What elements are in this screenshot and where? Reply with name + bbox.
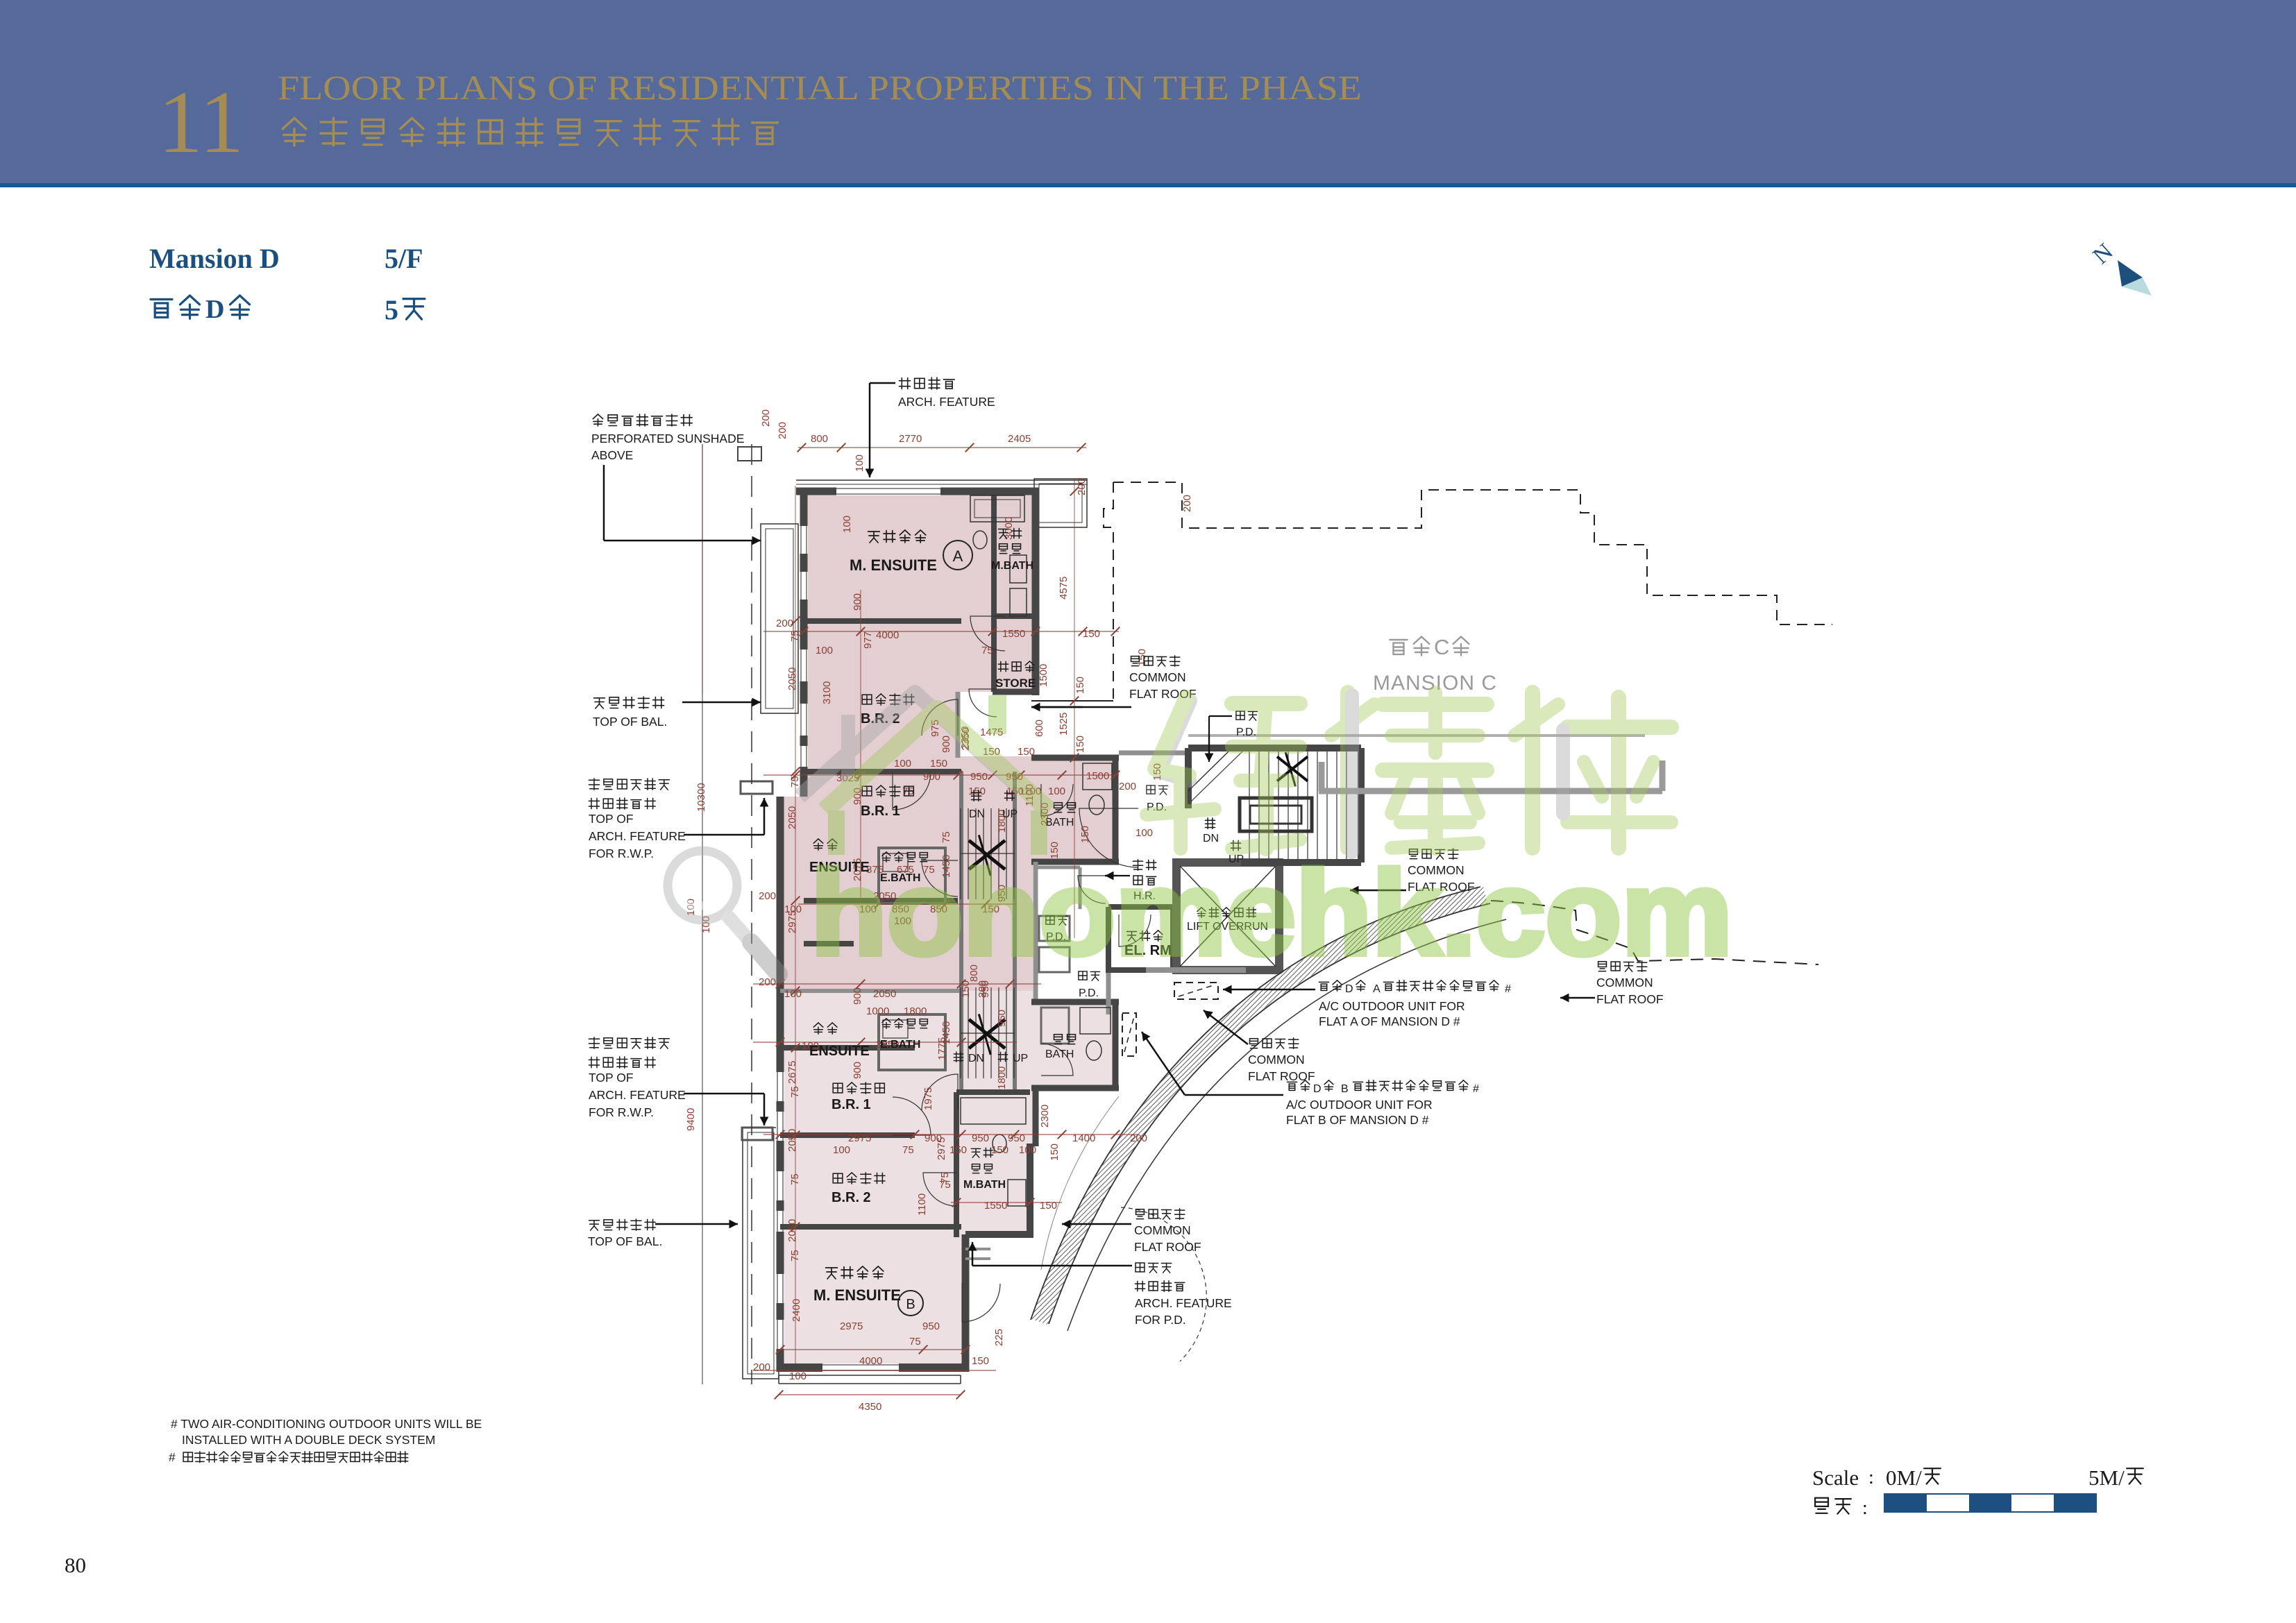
svg-text:P.D.: P.D.: [1079, 987, 1099, 999]
svg-text:1400: 1400: [1072, 1132, 1095, 1144]
svg-text:2770: 2770: [899, 433, 922, 445]
svg-text:200: 200: [1181, 495, 1193, 512]
svg-text:75: 75: [939, 1172, 951, 1184]
svg-text:FLAT B OF MANSION D #: FLAT B OF MANSION D #: [1286, 1113, 1429, 1127]
svg-text:900: 900: [852, 593, 863, 611]
svg-text:100: 100: [1048, 785, 1065, 797]
svg-text:1800: 1800: [904, 1005, 927, 1017]
svg-text:1500: 1500: [1038, 664, 1049, 687]
svg-text:2400: 2400: [791, 1299, 802, 1322]
svg-text:ARCH. FEATURE: ARCH. FEATURE: [589, 1088, 686, 1102]
svg-text:D: D: [205, 295, 224, 324]
svg-text:1775: 1775: [936, 1037, 948, 1060]
svg-text:75: 75: [940, 831, 952, 843]
svg-text:A: A: [953, 547, 963, 565]
svg-text:#: #: [1505, 983, 1511, 995]
svg-text:2975: 2975: [786, 910, 798, 933]
svg-text:FLAT A OF MANSION D #: FLAT A OF MANSION D #: [1319, 1014, 1460, 1028]
svg-text:100: 100: [816, 645, 833, 656]
svg-text:150: 150: [991, 1144, 1008, 1156]
svg-text:2975: 2975: [936, 1137, 947, 1160]
svg-text:M.BATH: M.BATH: [991, 560, 1033, 572]
svg-text:2405: 2405: [1008, 433, 1031, 445]
svg-text:TOP OF: TOP OF: [589, 812, 634, 826]
svg-text:0M/: 0M/: [1886, 1465, 1922, 1490]
svg-text::: :: [1862, 1497, 1868, 1519]
svg-text:2050: 2050: [786, 668, 798, 690]
svg-text:150: 150: [968, 785, 986, 797]
svg-text:COMMON: COMMON: [1134, 1223, 1191, 1237]
svg-text:950: 950: [972, 1132, 989, 1144]
svg-text:FOR R.W.P.: FOR R.W.P.: [589, 1105, 654, 1119]
svg-text:FLOOR PLANS OF RESIDENTIAL PRO: FLOOR PLANS OF RESIDENTIAL PROPERTIES IN…: [278, 68, 1362, 107]
svg-text:5: 5: [385, 294, 398, 325]
svg-text:150: 150: [1083, 628, 1100, 640]
svg-text:75: 75: [789, 1250, 801, 1261]
svg-text:100: 100: [854, 454, 866, 472]
svg-text:2975: 2975: [840, 1320, 863, 1332]
svg-text:BATH: BATH: [1045, 1048, 1074, 1060]
svg-text:100: 100: [841, 516, 853, 533]
svg-text:M.BATH: M.BATH: [963, 1179, 1006, 1191]
svg-text:600: 600: [1033, 720, 1045, 737]
svg-text:75: 75: [902, 1144, 914, 1156]
svg-text:225: 225: [993, 1329, 1005, 1346]
svg-text:B: B: [1341, 1083, 1349, 1095]
svg-text:hohomehk.com: hohomehk.com: [811, 847, 1732, 980]
svg-text:ARCH. FEATURE: ARCH. FEATURE: [1135, 1296, 1232, 1310]
svg-text:75: 75: [981, 645, 993, 656]
svg-text:2050: 2050: [873, 988, 896, 1000]
svg-text:150: 150: [1018, 746, 1035, 758]
svg-text:200: 200: [777, 422, 788, 439]
svg-text:4575: 4575: [1058, 577, 1070, 600]
svg-text:STORE: STORE: [995, 677, 1036, 690]
svg-text:9400: 9400: [685, 1108, 697, 1131]
svg-text:150: 150: [930, 758, 947, 770]
svg-text:75: 75: [789, 1173, 801, 1185]
svg-text:950: 950: [979, 980, 991, 998]
svg-text:5/F: 5/F: [385, 243, 423, 274]
svg-text:150: 150: [1074, 736, 1086, 753]
svg-text:200: 200: [1119, 781, 1136, 792]
svg-text:1525: 1525: [1058, 713, 1070, 736]
svg-text:COMMON: COMMON: [1248, 1053, 1305, 1067]
svg-text:BATH: BATH: [1045, 817, 1074, 829]
svg-text:B.R. 1: B.R. 1: [832, 1097, 871, 1112]
svg-text:100: 100: [1136, 827, 1153, 839]
svg-text:100: 100: [1019, 1144, 1036, 1156]
svg-text:A: A: [1373, 983, 1381, 995]
svg-text:5M/: 5M/: [2088, 1465, 2125, 1490]
svg-text:FLAT ROOF: FLAT ROOF: [1134, 1240, 1201, 1254]
svg-text:C: C: [1434, 635, 1449, 659]
svg-text:TOP OF BAL.: TOP OF BAL.: [593, 715, 667, 729]
svg-text:1550: 1550: [984, 1200, 1007, 1212]
svg-text:TOP OF BAL.: TOP OF BAL.: [588, 1234, 662, 1248]
svg-text:800: 800: [811, 433, 828, 445]
svg-text:950: 950: [922, 1320, 940, 1332]
svg-text:UP: UP: [1002, 808, 1018, 820]
svg-text:Mansion D: Mansion D: [149, 243, 280, 274]
svg-text:75: 75: [789, 630, 801, 642]
svg-text:150: 150: [960, 980, 972, 998]
svg-text:FOR P.D.: FOR P.D.: [1135, 1313, 1186, 1327]
svg-text:ABOVE: ABOVE: [591, 448, 633, 462]
svg-text:150: 150: [972, 1355, 989, 1367]
svg-text:900: 900: [852, 1062, 863, 1079]
svg-text:TOP OF: TOP OF: [589, 1071, 634, 1085]
svg-text:4350: 4350: [859, 1401, 881, 1413]
svg-text:2300: 2300: [1039, 1105, 1051, 1128]
svg-text:ENSUITE: ENSUITE: [809, 1044, 870, 1059]
svg-text:2050: 2050: [786, 1129, 798, 1152]
svg-text:100: 100: [784, 988, 802, 1000]
svg-text:4000: 4000: [859, 1355, 882, 1367]
svg-text:1800: 1800: [996, 1067, 1008, 1089]
svg-text:A/C OUTDOOR UNIT FOR: A/C OUTDOOR UNIT FOR: [1286, 1098, 1433, 1112]
svg-text:1975: 1975: [922, 1087, 934, 1110]
svg-text:2975: 2975: [848, 1132, 871, 1144]
svg-text:2675: 2675: [786, 1061, 798, 1084]
svg-text:M. ENSUITE: M. ENSUITE: [850, 556, 937, 574]
svg-text:100: 100: [894, 758, 911, 770]
svg-text:950: 950: [996, 1010, 1008, 1027]
svg-text:E.BATH: E.BATH: [880, 1039, 920, 1051]
svg-text:3100: 3100: [821, 681, 833, 704]
svg-text:75: 75: [789, 1086, 801, 1098]
svg-text:75: 75: [909, 1336, 921, 1348]
svg-text:B.R. 2: B.R. 2: [832, 1190, 871, 1205]
svg-text:100: 100: [789, 1370, 807, 1382]
svg-text:150: 150: [949, 1144, 967, 1156]
svg-text:COMMON: COMMON: [1129, 670, 1186, 684]
svg-text:PERFORATED SUNSHADE: PERFORATED SUNSHADE: [591, 432, 744, 445]
svg-text:75: 75: [789, 776, 801, 788]
svg-text:11: 11: [158, 73, 244, 171]
svg-text:200: 200: [759, 890, 776, 902]
svg-text:100: 100: [833, 1144, 850, 1156]
svg-text:900: 900: [940, 736, 952, 753]
svg-text:950: 950: [970, 771, 988, 783]
svg-text:1500: 1500: [1086, 770, 1109, 782]
svg-text:900: 900: [923, 771, 940, 783]
svg-text:1000: 1000: [866, 1005, 889, 1017]
svg-text:200: 200: [760, 409, 772, 427]
svg-text:200: 200: [1130, 1132, 1147, 1144]
svg-text:D: D: [1313, 1083, 1322, 1095]
svg-text:UP: UP: [1013, 1053, 1028, 1064]
svg-text:977: 977: [862, 631, 874, 649]
svg-text:4000: 4000: [876, 629, 899, 641]
svg-text:ARCH. FEATURE: ARCH. FEATURE: [589, 829, 686, 843]
svg-text:200: 200: [776, 618, 793, 629]
svg-text:150: 150: [1074, 677, 1086, 694]
svg-text:150: 150: [1040, 1200, 1057, 1212]
svg-text:A/C OUTDOOR UNIT FOR: A/C OUTDOOR UNIT FOR: [1319, 999, 1465, 1013]
svg-text:D: D: [1345, 983, 1353, 995]
svg-text:2050: 2050: [786, 1219, 798, 1242]
svg-text:80: 80: [65, 1553, 86, 1577]
svg-text:P.D.: P.D.: [1236, 726, 1256, 738]
svg-text:200: 200: [753, 1361, 770, 1373]
svg-text:950: 950: [1008, 1132, 1025, 1144]
svg-text:FLAT ROOF: FLAT ROOF: [1596, 992, 1664, 1006]
svg-text:B: B: [906, 1297, 915, 1312]
svg-text:1100: 1100: [916, 1193, 928, 1216]
svg-text:150: 150: [1079, 826, 1091, 843]
svg-text:#: #: [169, 1450, 176, 1464]
svg-text:150: 150: [1049, 1144, 1061, 1161]
svg-text:FOR R.W.P.: FOR R.W.P.: [589, 847, 654, 860]
svg-text:2050: 2050: [786, 806, 798, 829]
svg-text:10300: 10300: [695, 783, 707, 812]
svg-text:# TWO AIR-CONDITIONING OUTDOOR: # TWO AIR-CONDITIONING OUTDOOR UNITS WIL…: [171, 1417, 482, 1431]
svg-text:B.R. 1: B.R. 1: [861, 804, 900, 819]
svg-text:200: 200: [1076, 478, 1088, 495]
svg-text:900: 900: [852, 987, 863, 1005]
svg-text::: :: [1868, 1467, 1874, 1488]
svg-text:DN: DN: [968, 1053, 984, 1064]
svg-text:M. ENSUITE: M. ENSUITE: [813, 1286, 901, 1304]
svg-text:INSTALLED WITH A DOUBLE DECK S: INSTALLED WITH A DOUBLE DECK SYSTEM: [182, 1433, 435, 1447]
svg-text:DN: DN: [1203, 833, 1219, 844]
svg-text:ARCH. FEATURE: ARCH. FEATURE: [898, 395, 995, 409]
svg-text:Scale: Scale: [1812, 1465, 1859, 1490]
svg-text:#: #: [1473, 1083, 1479, 1095]
svg-text:DN: DN: [969, 808, 985, 820]
svg-text:1550: 1550: [1002, 628, 1025, 640]
